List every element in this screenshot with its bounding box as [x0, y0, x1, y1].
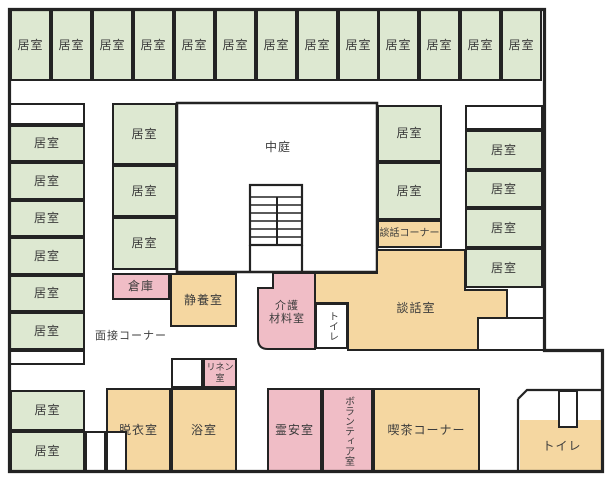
labels-layer: 中庭面接コーナー談話室介護 材料室 — [0, 0, 611, 482]
floor-plan: 居室居室居室居室居室居室居室居室居室居室居室居室居室居室居室居室居室居室居室居室… — [0, 0, 611, 482]
courtyard-label: 中庭 — [254, 140, 302, 154]
interview-corner-label: 面接コーナー — [91, 330, 171, 343]
conversation-room-label: 談話室 — [386, 301, 446, 315]
care-materials-room-label: 介護 材料室 — [257, 300, 317, 326]
